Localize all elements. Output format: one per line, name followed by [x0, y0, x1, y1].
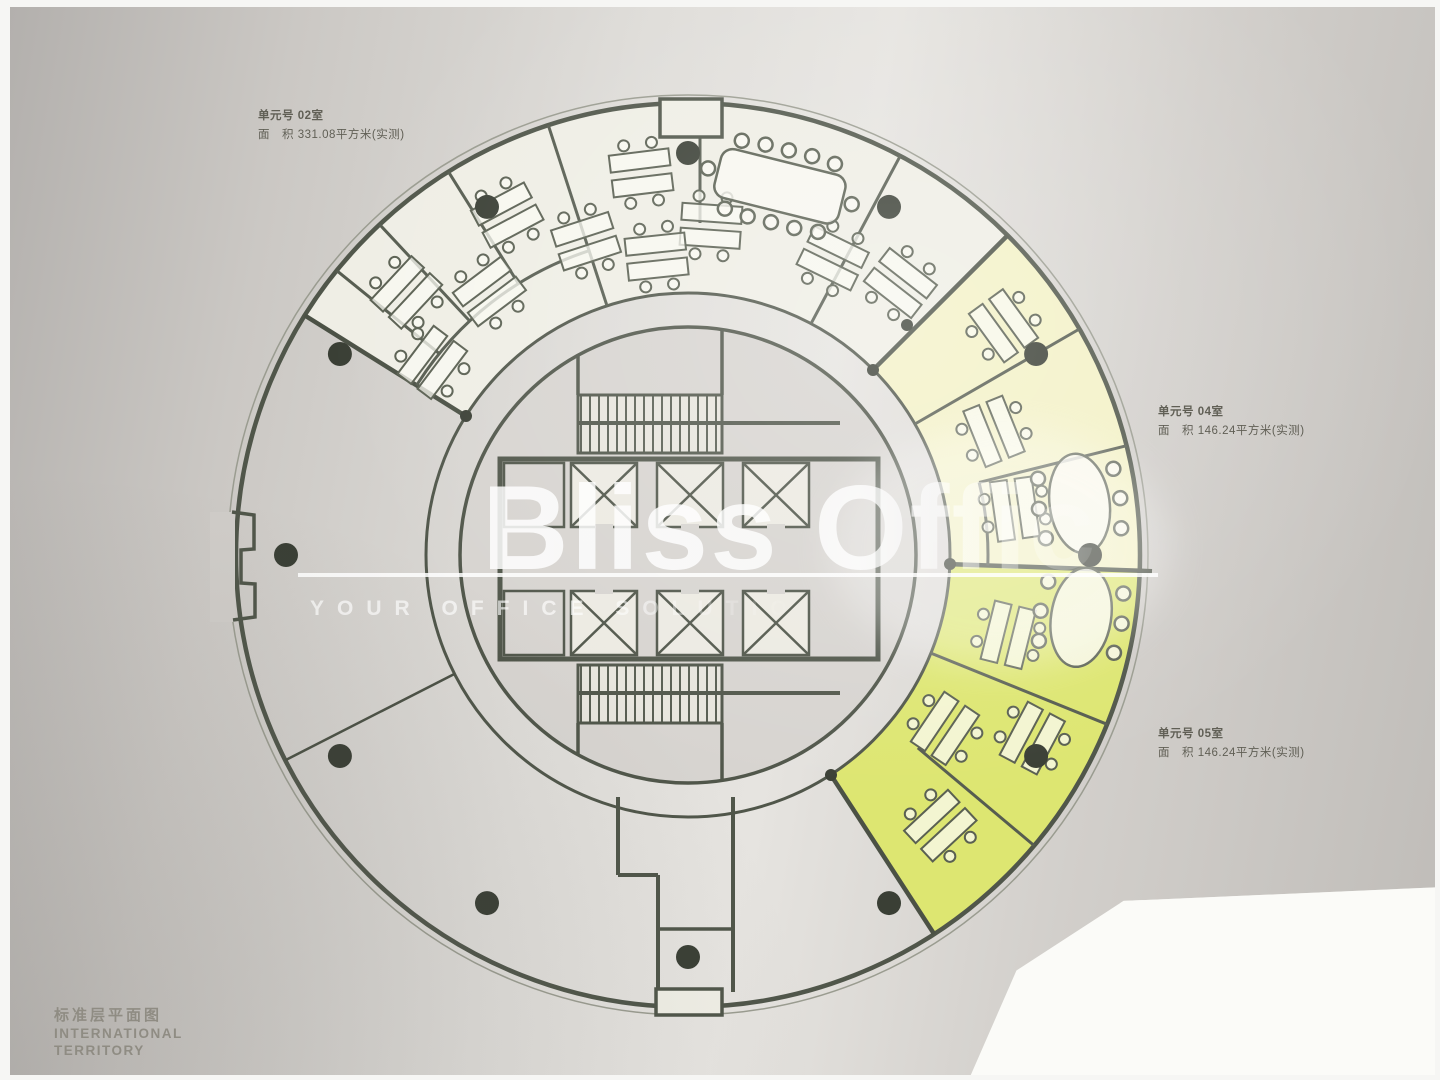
scanned-floorplan-page: Bliss Office YOUR OFFICE SOLUTION 单元号 02… [0, 0, 1440, 1080]
unit-05-number: 单元号 05室 [1158, 725, 1305, 744]
unit-04-label: 单元号 04室 面 积 146.24平方米(实测) [1158, 403, 1305, 441]
unit-02-area-text: 面 积 331.08平方米(实测) [258, 126, 405, 145]
unit-05-label: 单元号 05室 面 积 146.24平方米(实测) [1158, 725, 1305, 763]
logo-english-line2: TERRITORY [54, 1043, 183, 1060]
watermark-divider [298, 573, 1158, 577]
unit-04-area-text: 面 积 146.24平方米(实测) [1158, 422, 1305, 441]
unit-05-area-text: 面 积 146.24平方米(实测) [1158, 744, 1305, 763]
unit-04-number: 单元号 04室 [1158, 403, 1305, 422]
floorplan-photo: Bliss Office YOUR OFFICE SOLUTION 单元号 02… [10, 7, 1435, 1075]
logo-english-line1: INTERNATIONAL [54, 1026, 183, 1043]
watermark-tagline: YOUR OFFICE SOLUTION [310, 597, 828, 620]
logo-chinese-text: 标准层平面图 [54, 1007, 183, 1026]
developer-logo: 标准层平面图 INTERNATIONAL TERRITORY [54, 1007, 183, 1060]
unit-02-number: 单元号 02室 [258, 107, 405, 126]
unit-02-label: 单元号 02室 面 积 331.08平方米(实测) [258, 107, 405, 145]
